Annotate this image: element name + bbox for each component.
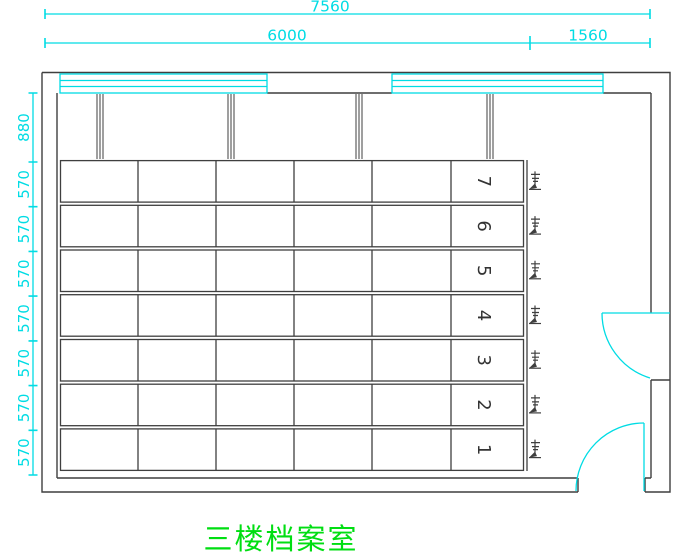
crank-handle-icon xyxy=(529,306,541,324)
shelf-row-number: 2 xyxy=(473,399,494,410)
dimension-label-vertical: 570 xyxy=(15,170,33,199)
dimension-label-overall-width: 7560 xyxy=(310,0,349,16)
window-frame xyxy=(60,74,267,93)
shelf-row: 6 xyxy=(61,205,542,247)
shelving-rails xyxy=(97,94,493,159)
door-bottom-wall xyxy=(576,423,644,491)
dimension-label-vertical: 570 xyxy=(15,349,33,378)
shelf-row-outline xyxy=(61,384,524,426)
shelf-row-number: 1 xyxy=(473,444,494,455)
shelf-row: 7 xyxy=(61,161,542,203)
window-glazing-lines xyxy=(60,81,267,87)
door-right-wall xyxy=(602,313,670,378)
window-glazing-lines xyxy=(392,81,603,87)
dimension-label-vertical: 570 xyxy=(15,394,33,423)
floor-plan-canvas: 7654321 7560 6000 1560 88057057057057057… xyxy=(0,0,700,554)
shelf-row: 1 xyxy=(61,429,542,471)
shelf-row-outline xyxy=(61,295,524,337)
drawing-title: 三楼档案室 xyxy=(203,522,358,554)
dimension-line xyxy=(45,14,650,43)
window-top-right xyxy=(392,74,603,93)
crank-handle-icon xyxy=(529,261,541,279)
shelf-row-outline xyxy=(61,161,524,203)
dimension-label-vertical: 880 xyxy=(15,113,33,142)
dimension-label-vertical: 570 xyxy=(15,304,33,333)
shelf-row-number: 5 xyxy=(473,265,494,276)
shelf-row: 5 xyxy=(61,250,542,292)
door-swing-arc xyxy=(602,313,650,378)
dimensions-top: 7560 6000 1560 xyxy=(45,0,650,50)
rail-track xyxy=(487,94,493,159)
crank-handle-icon xyxy=(529,440,541,458)
crank-handle-icon xyxy=(529,216,541,234)
crank-handle-icon xyxy=(529,395,541,413)
door-swing-arc xyxy=(576,423,644,491)
dimension-label-vertical: 570 xyxy=(15,438,33,467)
window-frame xyxy=(392,74,603,93)
rail-track xyxy=(97,94,103,159)
shelf-row: 2 xyxy=(61,384,542,426)
shelf-row-outline xyxy=(61,340,524,382)
shelf-row-outline xyxy=(61,250,524,292)
shelf-row-number: 4 xyxy=(473,310,494,321)
dimensions-left: 880570570570570570570570 xyxy=(15,93,38,475)
shelf-row-number: 3 xyxy=(473,354,494,365)
shelf-row-number: 6 xyxy=(473,220,494,231)
window-top-left xyxy=(60,74,267,93)
rail-track xyxy=(356,94,362,159)
shelf-row: 4 xyxy=(61,295,542,337)
crank-handle-icon xyxy=(529,171,541,189)
floor-plan-page: 7654321 7560 6000 1560 88057057057057057… xyxy=(0,0,700,554)
shelf-row-number: 7 xyxy=(473,176,494,187)
dimension-label-aisle: 1560 xyxy=(568,27,607,45)
dimension-label-vertical: 570 xyxy=(15,215,33,244)
dimension-label-vertical: 570 xyxy=(15,259,33,288)
shelf-grid: 7654321 xyxy=(61,160,542,471)
crank-handle-icon xyxy=(529,350,541,368)
shelf-row: 3 xyxy=(61,340,542,382)
shelf-row-outline xyxy=(61,205,524,247)
shelf-row-outline xyxy=(61,429,524,471)
rail-track xyxy=(228,94,234,159)
dimension-label-shelf-span: 6000 xyxy=(267,27,306,45)
